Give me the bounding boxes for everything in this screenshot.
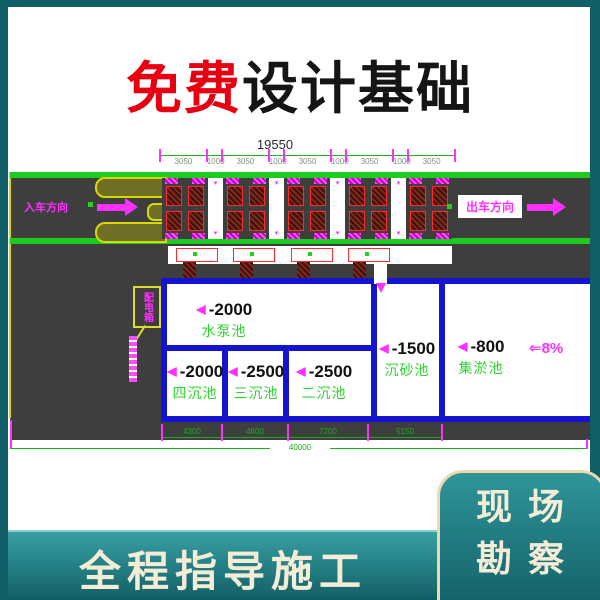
platform-module (284, 178, 330, 239)
pool-label-fourth: -2000 四沉池 (167, 362, 223, 403)
entry-direction-label: 入车方向 (24, 199, 68, 215)
slope-label: ⇐8% (529, 339, 563, 357)
badge-line2: 勘察 (440, 533, 600, 585)
dimension-label: 1000 (207, 157, 222, 166)
dimension-tick (586, 439, 588, 449)
exit-direction-label: 出车方向 (458, 195, 522, 218)
cad-marker-icon (88, 202, 93, 207)
dimension-total-bottom: 40000 (270, 443, 330, 452)
level-marker-icon (296, 367, 306, 377)
channel-box (176, 248, 218, 262)
badge-line1: 现场 (440, 481, 600, 533)
pool-name: 水泵池 (201, 321, 246, 341)
dimension-line (162, 437, 442, 438)
pool-level: -2500 (241, 362, 284, 382)
channel-box (291, 248, 333, 262)
banner-label: 全程指导施工 (8, 538, 438, 599)
title-highlight: 免费 (126, 57, 242, 120)
pool-wall (371, 278, 377, 422)
platform-module (162, 178, 208, 239)
level-marker-icon (457, 342, 467, 352)
dimension-label: 5150 (368, 427, 442, 436)
dimension-label: 3050 (408, 157, 455, 166)
pool-level: -2000 (180, 362, 223, 382)
annotation-label: 配电箱 (140, 292, 155, 322)
channel-box (233, 248, 275, 262)
dimension-label: 3050 (222, 157, 269, 166)
wash-platform: ▾▾▾▾▾▾▾▾ (162, 178, 452, 239)
plan-left-boundary-line (9, 172, 11, 418)
platform-rail: ▾▾ (269, 178, 284, 239)
pool-level: -1500 (392, 339, 435, 359)
level-marker-icon (167, 367, 177, 377)
dimension-label: 1000 (269, 157, 284, 166)
pool-wall (161, 345, 377, 351)
pool-name: 三沉池 (233, 383, 278, 403)
pool-label-third: -2500 三沉池 (228, 362, 284, 403)
dimension-tick (454, 149, 456, 162)
annotation-box: 配电箱 (133, 286, 161, 328)
dimension-label: 3050 (346, 157, 393, 166)
platform-module (406, 178, 452, 239)
platform-module (223, 178, 269, 239)
title-rest: 设计基础 (242, 57, 474, 120)
level-marker-icon (196, 305, 206, 315)
cad-marker-icon (447, 204, 452, 209)
dimension-label: 4600 (222, 427, 288, 436)
entry-arrow-icon (97, 204, 125, 211)
pool-label-pump: -2000 水泵池 (196, 300, 252, 341)
pool-name: 沉砂池 (384, 360, 429, 380)
pool-label-second: -2500 二沉池 (296, 362, 352, 403)
dimension-tick (10, 420, 12, 448)
platform-module (345, 178, 391, 239)
pool-level: -2500 (309, 362, 352, 382)
pool-name: 集淤池 (459, 358, 504, 378)
pool-label-sludge: -800 集淤池 (457, 337, 504, 378)
dimension-label: 1000 (331, 157, 346, 166)
pool-level: -2000 (209, 300, 252, 320)
inlet-channel (374, 262, 387, 284)
pool-wall (439, 278, 445, 422)
platform-rail: ▾▾ (208, 178, 223, 239)
pool-name: 二沉池 (301, 383, 346, 403)
pool-name: 四沉池 (172, 383, 217, 403)
dimension-label: 7200 (288, 427, 368, 436)
platform-rail: ▾▾ (391, 178, 406, 239)
pool-level: -800 (470, 337, 504, 357)
dimension-label: 3050 (284, 157, 331, 166)
page-title: 免费设计基础 (0, 44, 600, 125)
distribution-box-symbol (129, 336, 137, 382)
channel-box (348, 248, 390, 262)
pool-label-grit: -1500 沉砂池 (379, 339, 435, 380)
dimension-row-bottom: 4300460072005150 (162, 424, 442, 442)
dimension-row-top: 305010003050100030501000305010003050 (160, 148, 455, 172)
dimension-line (160, 155, 455, 156)
level-marker-icon (228, 367, 238, 377)
site-survey-badge: 现场 勘察 (437, 470, 600, 600)
dimension-tick (441, 424, 443, 441)
platform-rail: ▾▾ (330, 178, 345, 239)
frame-left (0, 0, 8, 600)
frame-top (0, 0, 600, 7)
level-marker-icon (379, 344, 389, 354)
traffic-island (95, 222, 167, 243)
exit-arrow-icon (527, 204, 553, 211)
traffic-island (95, 177, 167, 198)
dimension-label: 4300 (162, 427, 222, 436)
flow-arrow-icon (376, 283, 386, 293)
dimension-label: 1000 (393, 157, 408, 166)
dimension-label: 3050 (160, 157, 207, 166)
promo-page: 免费设计基础 19550 305010003050100030501000305… (0, 0, 600, 600)
